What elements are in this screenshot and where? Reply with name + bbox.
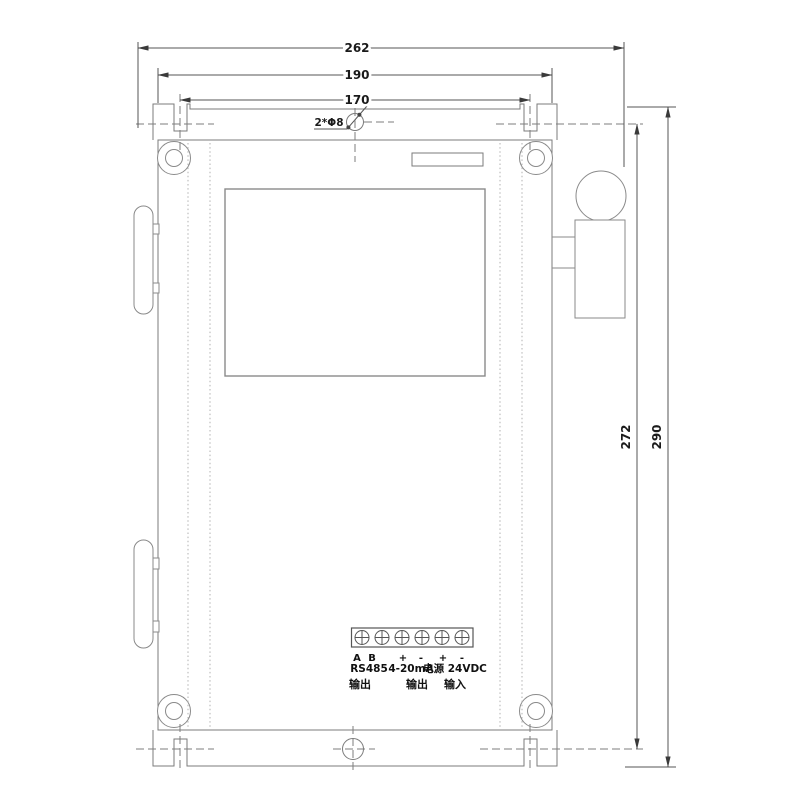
terminal-screw [375,631,389,645]
dim-body-width-label: 190 [344,68,369,82]
corner-screw-hole [520,142,553,175]
terminal-screw [455,631,469,645]
terminal-screw [395,631,409,645]
terminal-screw [435,631,449,645]
direction-label-output: 输出 [406,677,428,691]
terminal-screw [355,631,369,645]
enclosure-dimension-drawing: 2*Φ8 A [0,0,812,804]
sensor-body [575,220,625,318]
terminal-direction-labels: 输出 输出 输入 [349,677,466,691]
display-window [225,189,485,376]
dim-mounting-spacing-h-label: 170 [344,93,369,107]
hinge-lower [134,540,159,648]
corner-screw-hole [158,142,191,175]
hinge-slot [134,206,153,314]
dim-mounting-spacing-v-label: 272 [619,424,633,449]
drawing-canvas: 2*Φ8 A [0,0,812,804]
dim-overall-height-label: 290 [650,424,664,449]
group-label-rs485: RS485 [350,663,388,675]
direction-label-input: 输入 [444,677,466,691]
terminal-group-labels: RS485 4-20mA 电源 24VDC [350,662,487,675]
sensor-head [576,171,626,221]
direction-label-output: 输出 [349,677,371,691]
hinge-upper [134,206,159,314]
vertical-dimensions: 272 290 [619,107,676,767]
hinge-slot [134,540,153,648]
leader-dot [346,125,350,129]
vent-slot [412,153,483,166]
corner-screw-hole [520,695,553,728]
group-label-power: 电源 24VDC [423,662,487,675]
hole-callout-label: 2*Φ8 [314,117,343,129]
terminal-screw [415,631,429,645]
leader-dot [357,113,361,117]
corner-screw-hole [158,695,191,728]
side-sensor-attachment [552,171,626,318]
dim-overall-width-label: 262 [344,41,369,55]
